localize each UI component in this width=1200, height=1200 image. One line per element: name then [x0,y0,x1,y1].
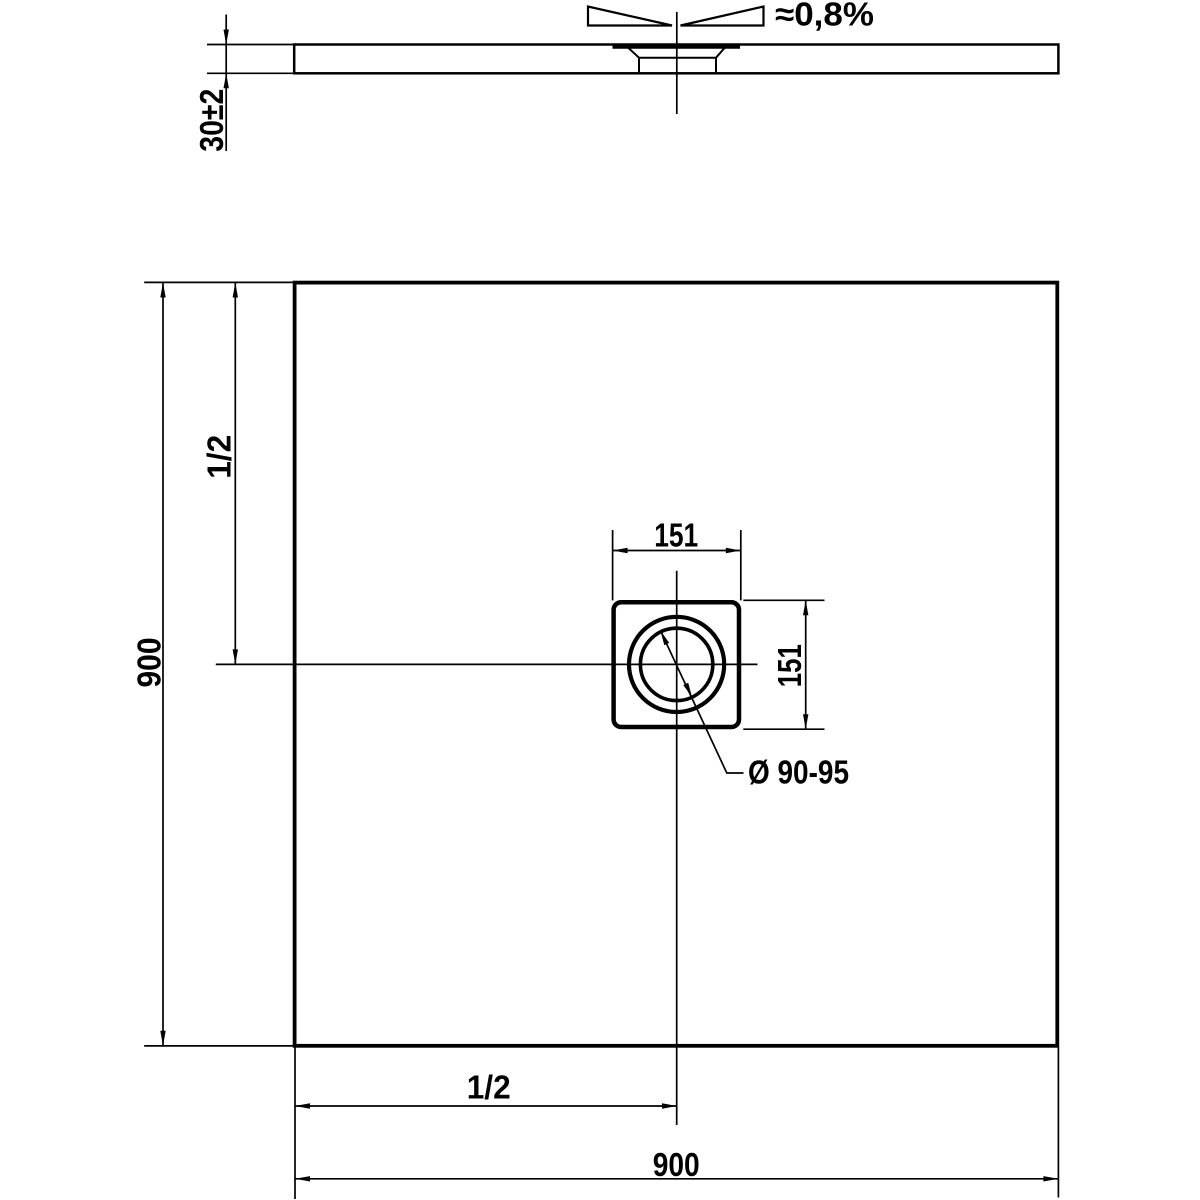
svg-text:1/2: 1/2 [467,1069,511,1106]
svg-text:151: 151 [654,517,698,554]
svg-text:30±2: 30±2 [193,89,230,152]
svg-text:151: 151 [771,644,808,687]
svg-text:900: 900 [653,1146,700,1183]
svg-text:900: 900 [131,638,168,688]
svg-text:1/2: 1/2 [201,435,238,479]
svg-text:Ø 90-95: Ø 90-95 [748,754,849,791]
svg-text:≈0,8%: ≈0,8% [775,0,874,33]
